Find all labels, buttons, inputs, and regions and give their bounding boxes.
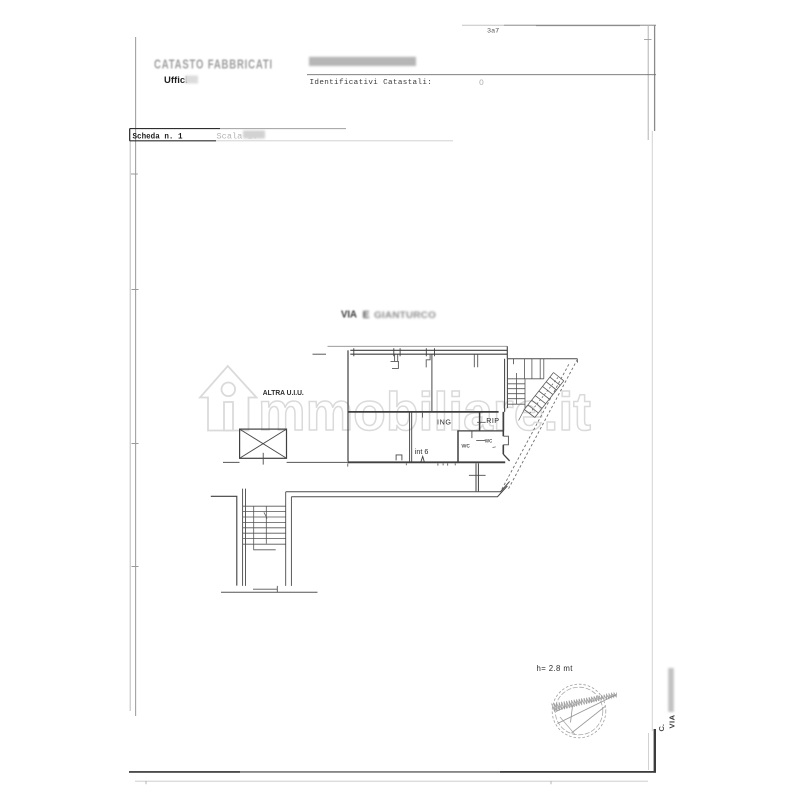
- svg-text:ING: ING: [437, 418, 452, 427]
- svg-text:wc: wc: [484, 439, 492, 445]
- svg-text:Identificativi Catastali:: Identificativi Catastali:: [310, 79, 433, 87]
- svg-text:3a7: 3a7: [487, 28, 499, 36]
- svg-text:VIA: VIA: [341, 310, 357, 321]
- svg-text:O: O: [479, 79, 484, 88]
- svg-text:GIANTURCO: GIANTURCO: [374, 310, 436, 321]
- svg-text:Uffici: Uffici: [164, 75, 188, 86]
- svg-text:RIP: RIP: [486, 416, 499, 425]
- svg-text:Scheda n. 1: Scheda n. 1: [133, 131, 183, 141]
- svg-text:VIA: VIA: [667, 714, 676, 728]
- svg-text:h= 2.8 mt: h= 2.8 mt: [537, 664, 574, 673]
- svg-text:CATASTO FABBRICATI: CATASTO FABBRICATI: [154, 58, 273, 72]
- svg-text:int 6: int 6: [415, 447, 429, 456]
- svg-text:C.: C.: [657, 724, 666, 732]
- svg-text:ALTRA U.I.U.: ALTRA U.I.U.: [263, 390, 304, 397]
- svg-text:wc: wc: [461, 443, 471, 450]
- svg-text:E: E: [363, 309, 370, 321]
